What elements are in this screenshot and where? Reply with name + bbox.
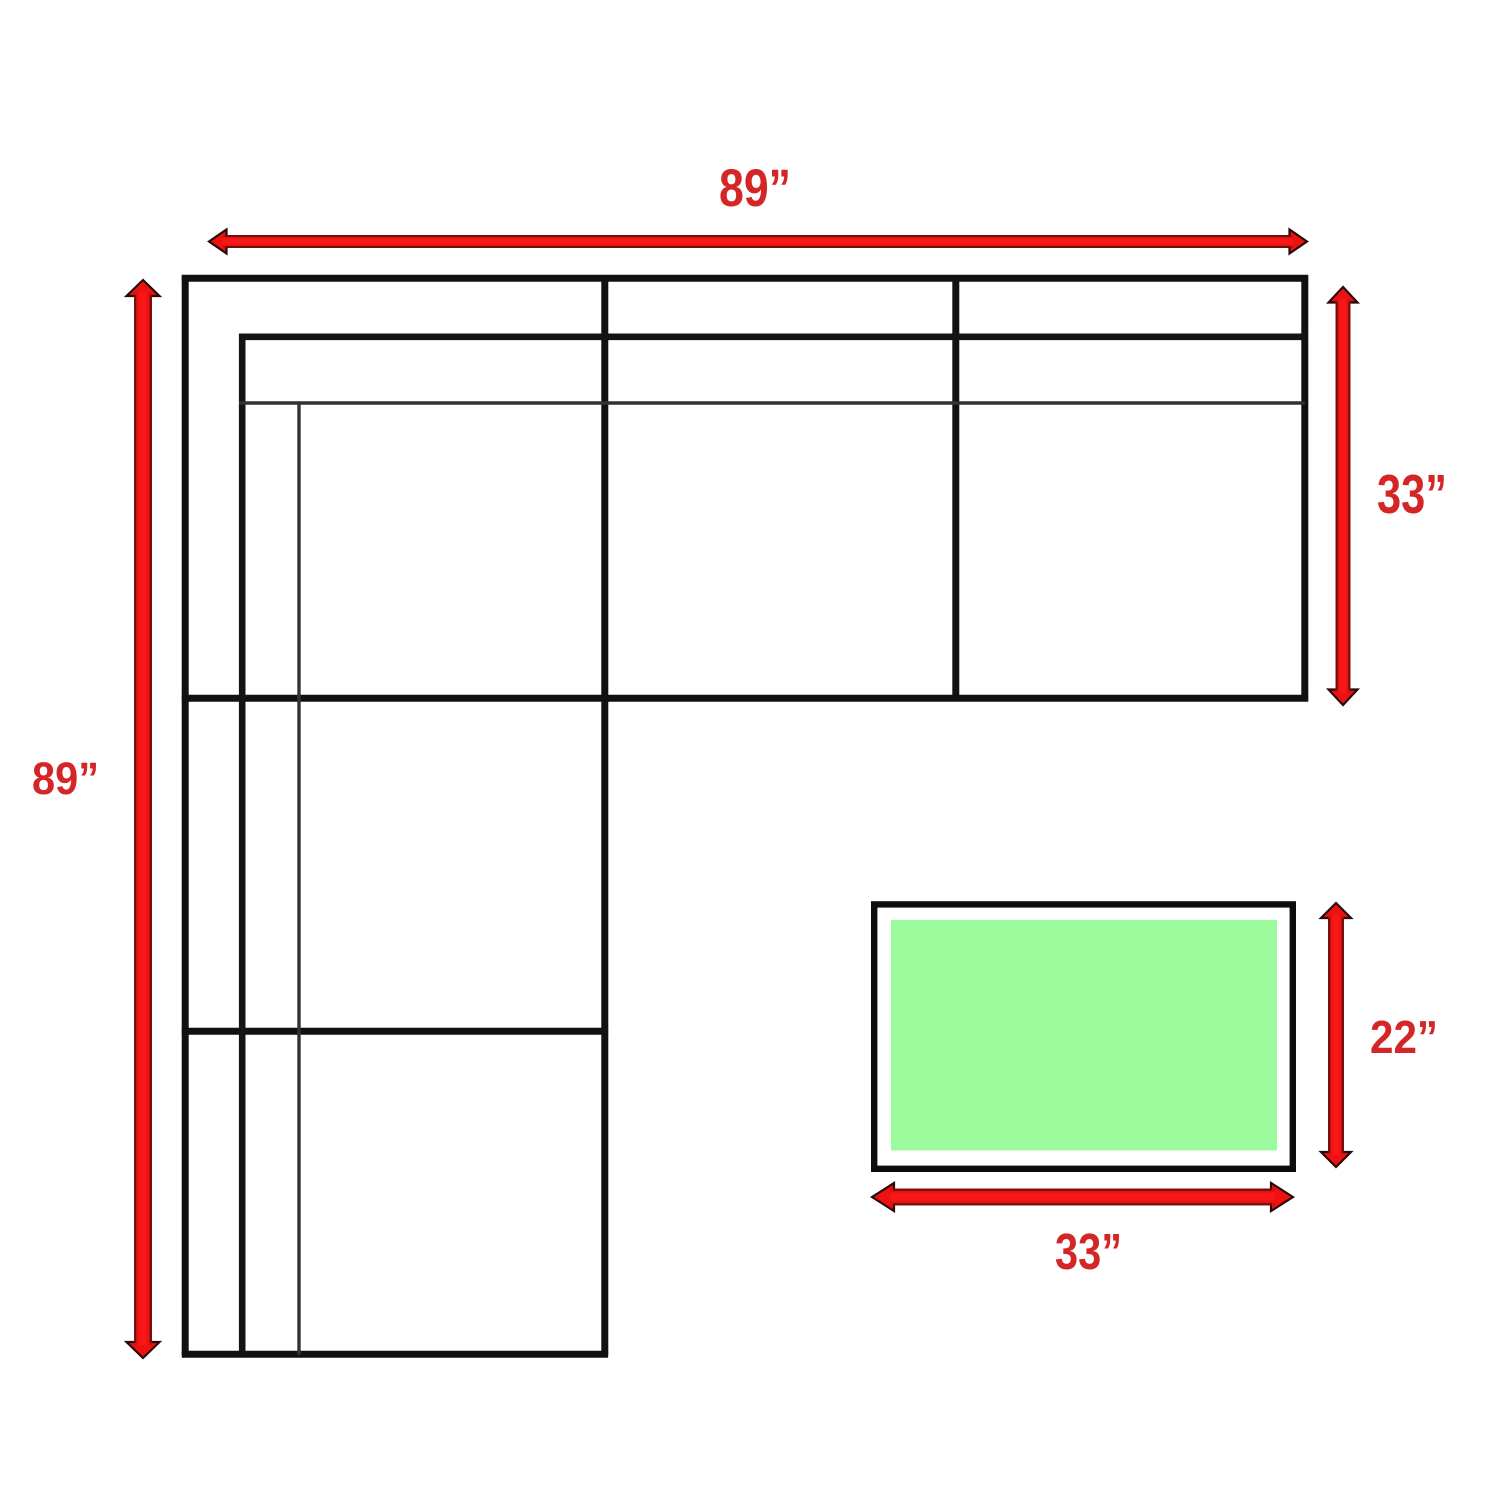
svg-text:33”: 33” [1055, 1223, 1122, 1280]
svg-text:89”: 89” [719, 159, 791, 218]
svg-text:33”: 33” [1377, 463, 1447, 525]
svg-text:22”: 22” [1370, 1011, 1438, 1063]
svg-text:89”: 89” [32, 753, 99, 804]
